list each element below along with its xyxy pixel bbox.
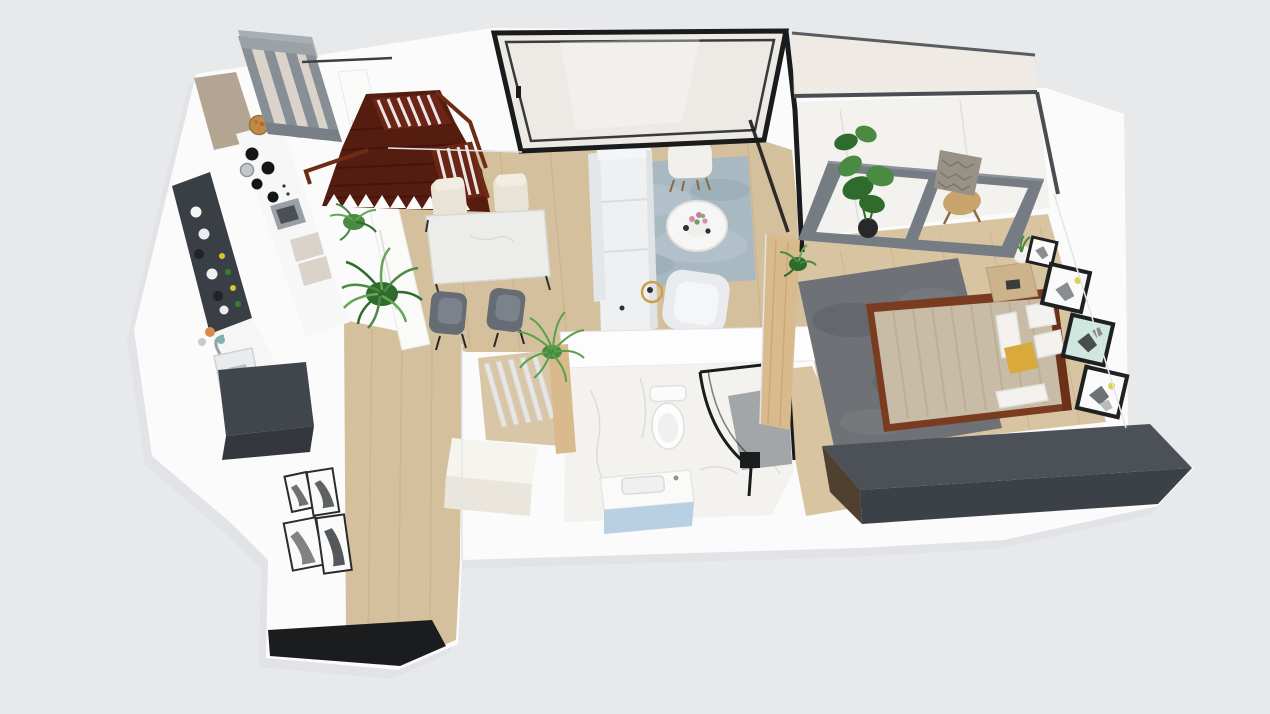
bottle	[683, 225, 689, 231]
vanity-faucet	[674, 476, 679, 481]
bed-pillow	[1034, 330, 1064, 358]
floor-plan-render	[0, 0, 1270, 714]
window-sheen	[560, 38, 700, 130]
window-handle	[516, 86, 521, 98]
vanity-basin	[621, 476, 664, 495]
armchair	[660, 268, 732, 336]
sofa-chaise	[600, 296, 652, 334]
leaning-art-frame	[307, 468, 340, 516]
dark-appliance-box	[218, 362, 314, 436]
vanity	[600, 470, 694, 534]
double-bed	[866, 288, 1072, 432]
nightstand-book	[1006, 279, 1021, 289]
apartment-scene	[0, 0, 1270, 714]
sofa-seat	[600, 150, 652, 300]
kettle	[241, 164, 254, 177]
toilet	[650, 385, 687, 449]
bathroom-top-wall	[560, 326, 842, 368]
flowers	[689, 216, 695, 222]
hallway-wood-floor	[344, 320, 462, 664]
shower-fixture	[740, 452, 760, 468]
sofa-item	[620, 306, 625, 311]
round-coffee-table	[667, 201, 727, 251]
shower-pipe	[749, 468, 751, 496]
storage-cube	[444, 438, 538, 516]
cube-top	[446, 438, 538, 484]
